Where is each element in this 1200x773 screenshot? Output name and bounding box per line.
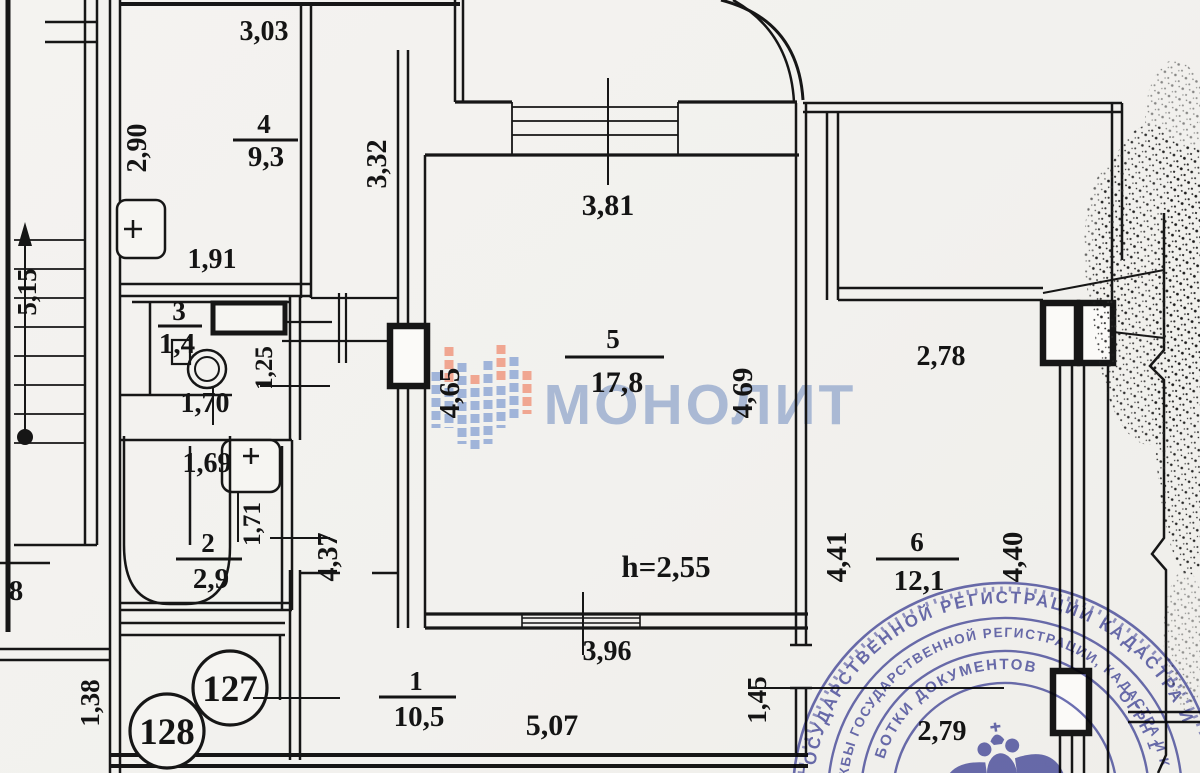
unit-circles: 127 128 — [130, 651, 340, 768]
dim-5-15: 5,15 — [12, 268, 42, 315]
stair-start-dot — [17, 429, 33, 445]
room-5-number: 5 — [606, 324, 620, 354]
dim-1-69: 1,69 — [183, 448, 232, 479]
registration-stamp: ГОСУДАРСТВЕННОЙ РЕГИСТРАЦИИ КАДАСТРА И С… — [766, 556, 1200, 773]
ceiling-height-note: h=2,55 — [621, 549, 710, 584]
dim-4-37: 4,37 — [313, 533, 344, 582]
door-block-room5 — [390, 326, 427, 386]
room-4-number: 4 — [257, 109, 271, 139]
monolit-watermark: МОНОЛИТ — [436, 345, 856, 450]
dim-3-81: 3,81 — [582, 189, 635, 222]
staircase — [14, 222, 85, 445]
floor-number: 8 — [9, 575, 24, 607]
dim-1-91: 1,91 — [188, 244, 237, 275]
dim-4-65: 4,65 — [434, 368, 466, 419]
dim-4-40: 4,40 — [997, 532, 1029, 583]
room-4-area: 9,3 — [248, 141, 284, 173]
scanned-floor-plan-page: МОНОЛИТ — [0, 0, 1200, 773]
dim-5-07: 5,07 — [526, 709, 579, 742]
room-5-area: 17,8 — [591, 366, 644, 399]
dim-1-38: 1,38 — [75, 679, 105, 726]
vent-shaft — [213, 303, 285, 333]
dim-3-03: 3,03 — [240, 16, 289, 47]
room-2-number: 2 — [201, 528, 215, 558]
dim-1-25: 1,25 — [251, 346, 278, 390]
dim-1-71: 1,71 — [239, 502, 266, 546]
dim-3-96: 3,96 — [583, 636, 632, 667]
unit-128-label: 128 — [139, 712, 195, 753]
dim-2-90: 2,90 — [122, 124, 153, 173]
toilet-bowl-inner — [195, 357, 219, 381]
room-1-area: 10,5 — [394, 701, 445, 733]
dim-2-79: 2,79 — [918, 716, 967, 747]
dim-4-41: 4,41 — [821, 532, 853, 583]
room-6-number: 6 — [910, 527, 924, 557]
stair-direction-arrow-icon — [18, 222, 32, 246]
unit-127-label: 127 — [202, 669, 258, 710]
dim-2-78: 2,78 — [917, 341, 966, 372]
room-1-number: 1 — [409, 666, 423, 696]
dim-1-45: 1,45 — [742, 676, 772, 723]
door-block-bottom-right — [1053, 671, 1089, 733]
dim-4-69: 4,69 — [727, 368, 759, 419]
room-2-area: 2,9 — [193, 563, 229, 595]
room-3-area: 1,4 — [159, 328, 195, 360]
room-3-number: 3 — [172, 296, 186, 326]
floor-plan-drawing: МОНОЛИТ — [0, 0, 1200, 773]
dim-1-70: 1,70 — [181, 388, 230, 419]
room-6-area: 12,1 — [894, 565, 945, 597]
dim-3-32: 3,32 — [362, 140, 393, 189]
window-block-right-1 — [1043, 303, 1077, 363]
